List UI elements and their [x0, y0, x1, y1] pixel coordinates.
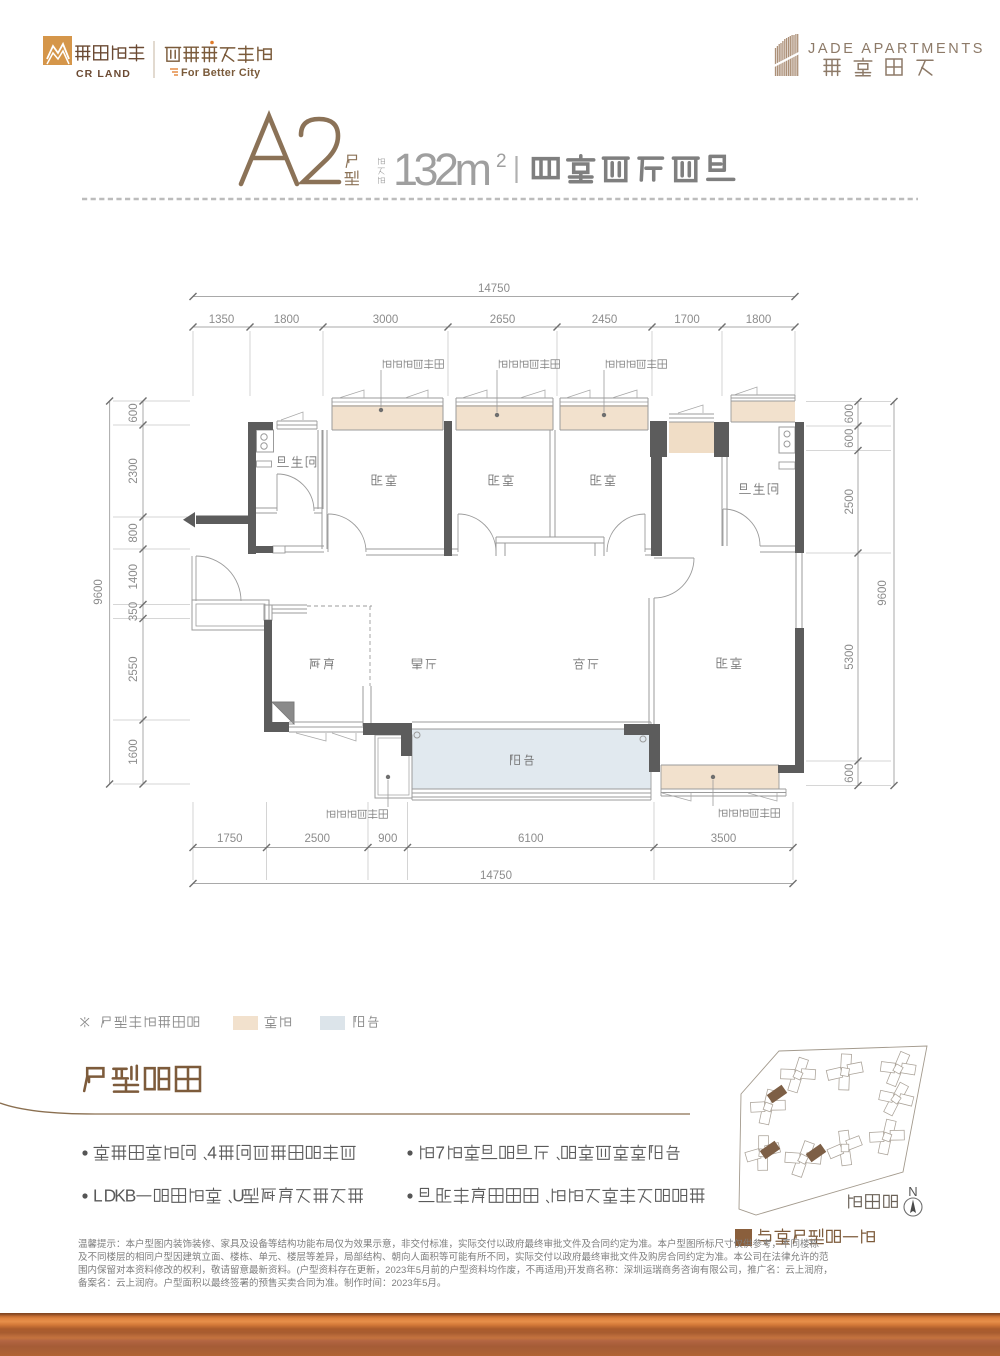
- svg-text:1600: 1600: [128, 739, 140, 765]
- svg-text:800: 800: [128, 523, 140, 542]
- svg-text:2: 2: [496, 151, 507, 172]
- svg-text:B: B: [125, 1186, 137, 1206]
- svg-text:9600: 9600: [93, 579, 105, 605]
- svg-text:5300: 5300: [844, 644, 856, 670]
- svg-text:U: U: [232, 1186, 244, 1206]
- svg-text:JADE APARTMENTS: JADE APARTMENTS: [808, 41, 985, 57]
- svg-text:1350: 1350: [209, 314, 235, 326]
- svg-text:600: 600: [128, 403, 140, 422]
- svg-text:14750: 14750: [478, 283, 510, 295]
- svg-text:600: 600: [844, 404, 856, 423]
- svg-text:350: 350: [128, 602, 140, 621]
- svg-text:2550: 2550: [128, 656, 140, 682]
- svg-text:3000: 3000: [373, 314, 399, 326]
- svg-text:2450: 2450: [592, 314, 618, 326]
- svg-text:1400: 1400: [128, 564, 140, 590]
- svg-text:600: 600: [844, 429, 856, 448]
- svg-text:L: L: [93, 1186, 103, 1206]
- svg-text:4: 4: [207, 1143, 217, 1163]
- svg-text:900: 900: [378, 833, 397, 845]
- svg-text:7: 7: [435, 1143, 445, 1163]
- svg-text:N: N: [908, 1184, 917, 1199]
- svg-text:2650: 2650: [490, 314, 516, 326]
- svg-text:132m: 132m: [393, 144, 492, 195]
- svg-text:2300: 2300: [128, 458, 140, 484]
- svg-text:CR LAND: CR LAND: [76, 68, 131, 80]
- svg-text:1800: 1800: [274, 314, 300, 326]
- svg-text:2500: 2500: [844, 489, 856, 515]
- svg-text:1800: 1800: [746, 314, 772, 326]
- svg-text:2500: 2500: [304, 833, 330, 845]
- svg-text:1750: 1750: [217, 833, 243, 845]
- svg-text:9600: 9600: [877, 580, 889, 606]
- svg-text:14750: 14750: [480, 870, 512, 882]
- svg-text:For Better City: For Better City: [181, 67, 261, 79]
- svg-text:600: 600: [844, 764, 856, 783]
- svg-text:6100: 6100: [518, 833, 544, 845]
- svg-text:3500: 3500: [711, 833, 737, 845]
- svg-text:1700: 1700: [674, 314, 700, 326]
